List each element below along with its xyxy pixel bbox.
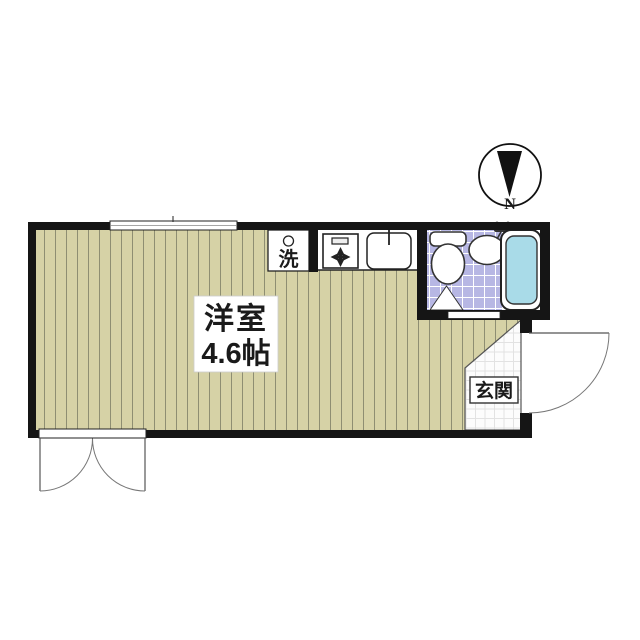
wash-basin-icon xyxy=(469,236,505,265)
door-swing-arc-icon xyxy=(93,439,146,492)
entrance-door xyxy=(529,333,609,413)
laundry-label: 洗 xyxy=(279,248,299,271)
svg-text:玄関: 玄関 xyxy=(475,379,513,402)
compass-north-label: N xyxy=(504,196,516,213)
room-name-label: 洋室 xyxy=(204,302,268,336)
room-label: 洋室 4.6帖 xyxy=(194,296,278,372)
kitchen-sink-icon xyxy=(367,229,411,269)
washing-machine-space: 洗 xyxy=(268,230,309,271)
toilet-icon xyxy=(430,232,466,284)
room-size-label: 4.6帖 xyxy=(201,337,270,370)
entrance-label: 玄関 xyxy=(470,377,518,403)
window xyxy=(110,216,237,230)
kitchen-counter xyxy=(318,229,417,270)
balcony-double-door xyxy=(39,429,146,491)
wall-right-bathroom xyxy=(540,222,550,320)
door-swing-arc-icon xyxy=(40,439,93,492)
wall-laundry-divider xyxy=(309,230,318,272)
floorplan-drawing: 洗 xyxy=(0,0,640,640)
wall-bathroom-left xyxy=(417,230,427,312)
wall-entrance-lower xyxy=(520,413,532,438)
washing-machine-outlet-icon xyxy=(284,236,294,246)
bathroom xyxy=(427,222,541,310)
north-compass-icon: N xyxy=(479,144,541,213)
wall-left xyxy=(28,222,36,438)
bathtub-icon xyxy=(501,230,541,310)
bathroom-door-threshold xyxy=(448,312,500,319)
door-swing-arc-icon xyxy=(529,333,609,413)
wall-top xyxy=(28,222,550,230)
floorplan-canvas: 洗 xyxy=(0,0,640,640)
wall-entrance-upper xyxy=(520,320,532,333)
gas-stove-burner-icon xyxy=(323,234,358,268)
